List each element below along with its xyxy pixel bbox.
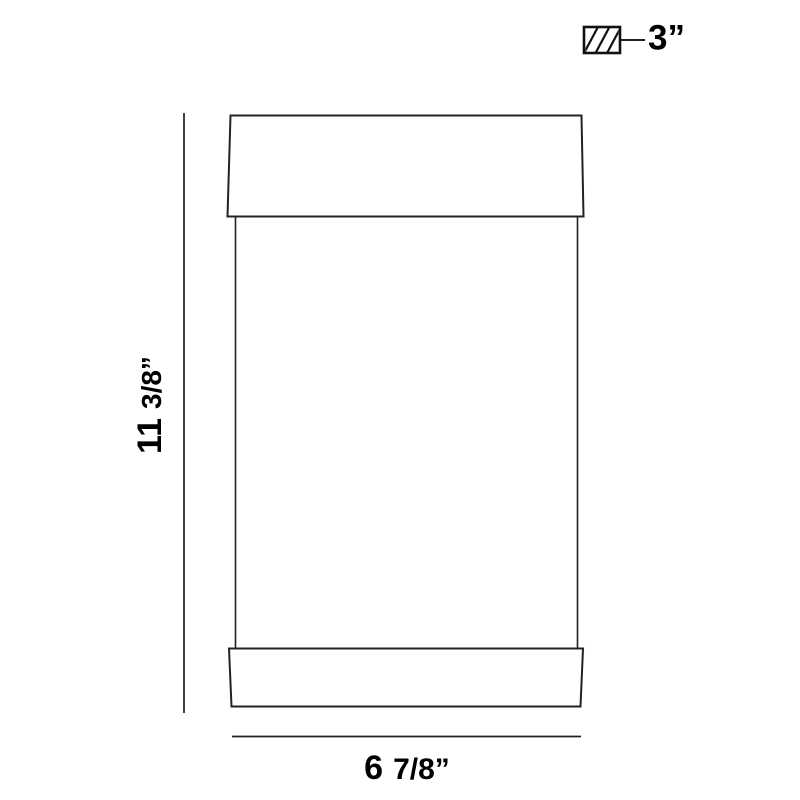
width-fraction: 7/8” bbox=[393, 753, 450, 786]
height-fraction: 3/8” bbox=[136, 356, 167, 409]
fixture-line-drawing bbox=[0, 0, 800, 800]
depth-dimension-label: 3” bbox=[648, 21, 685, 56]
width-whole-number: 6 bbox=[364, 749, 383, 787]
depth-value: 3” bbox=[648, 19, 685, 58]
width-dimension-label: 67/8” bbox=[364, 751, 450, 785]
depth-hatch-icon bbox=[583, 25, 622, 55]
dimension-diagram: 113/8” 67/8” 3” bbox=[0, 0, 800, 800]
fixture-top-cap bbox=[228, 116, 584, 217]
height-dimension-label: 113/8” bbox=[133, 356, 167, 454]
fixture-bottom-cap bbox=[229, 649, 583, 707]
height-whole-number: 11 bbox=[131, 418, 169, 454]
fixture-body bbox=[236, 217, 578, 649]
